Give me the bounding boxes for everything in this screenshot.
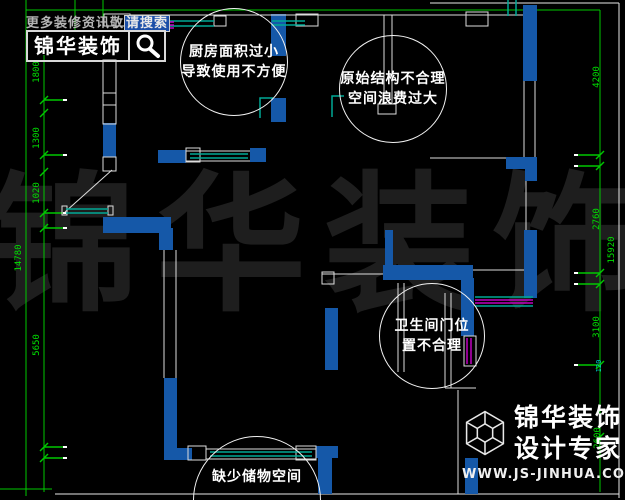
annotation-kitchen: 厨房面积过小 导致使用不方便 (180, 8, 288, 116)
logo-name-line: 锦华装饰 (514, 402, 622, 433)
logo-website: WWW.JS-JINHUA.COM (462, 467, 622, 482)
annotation-storage-line1: 缺少储物空间 (212, 467, 302, 487)
dim-left-1300: 1300 (32, 127, 42, 149)
dim-right-3100: 3100 (592, 316, 602, 338)
brand-search-block: 锦华装饰 (26, 30, 166, 62)
annotation-bathroom-line1: 卫生间门位 (395, 316, 470, 336)
annotation-structure: 原始结构不合理 空间浪费过大 (339, 35, 447, 143)
annotation-kitchen-line2: 导致使用不方便 (182, 62, 287, 82)
door-swing-line (65, 170, 112, 212)
dim-right-2760: 2760 (592, 208, 602, 230)
logo-tag-line: 设计专家 (514, 433, 622, 464)
company-logo-block: 锦华装饰 设计专家 WWW.JS-JINHUA.COM (462, 402, 622, 482)
cube-logo-icon (462, 402, 508, 464)
brand-name: 锦华装饰 (26, 30, 130, 62)
dim-right-overall-15920: 15920 (607, 236, 617, 263)
dim-left-5650: 5650 (32, 334, 42, 356)
cad-floorplan-screenshot: 锦华装饰 (0, 0, 625, 500)
dim-right-4200: 4200 (592, 66, 602, 88)
annotation-structure-line2: 空间浪费过大 (348, 89, 438, 109)
annotation-structure-line1: 原始结构不合理 (341, 69, 446, 89)
promo-text: 更多装修资讯敬请搜索 (26, 12, 170, 31)
magnifier-icon (133, 33, 161, 59)
annotation-kitchen-line1: 厨房面积过小 (189, 42, 279, 62)
annotation-bathroom-line2: 置不合理 (402, 336, 462, 356)
promo-prefix: 更多装修资讯敬 (26, 16, 124, 31)
annotation-bathroom: 卫生间门位 置不合理 (379, 283, 485, 389)
dim-left-1800: 1800 (32, 61, 42, 83)
dim-right-120: 120 (595, 360, 603, 373)
dim-left-1020: 1020 (32, 182, 42, 204)
search-box (130, 30, 166, 62)
dim-left-overall-14780: 14780 (14, 244, 24, 271)
